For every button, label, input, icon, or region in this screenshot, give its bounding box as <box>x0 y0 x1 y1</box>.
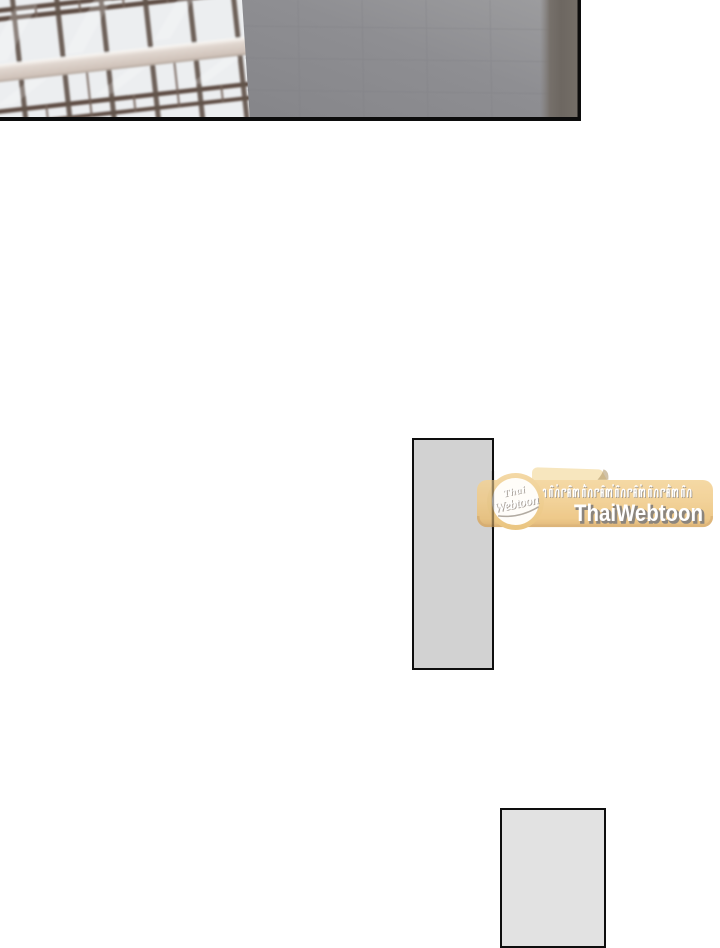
svg-text:ThaiWebtoon: ThaiWebtoon <box>574 500 703 527</box>
